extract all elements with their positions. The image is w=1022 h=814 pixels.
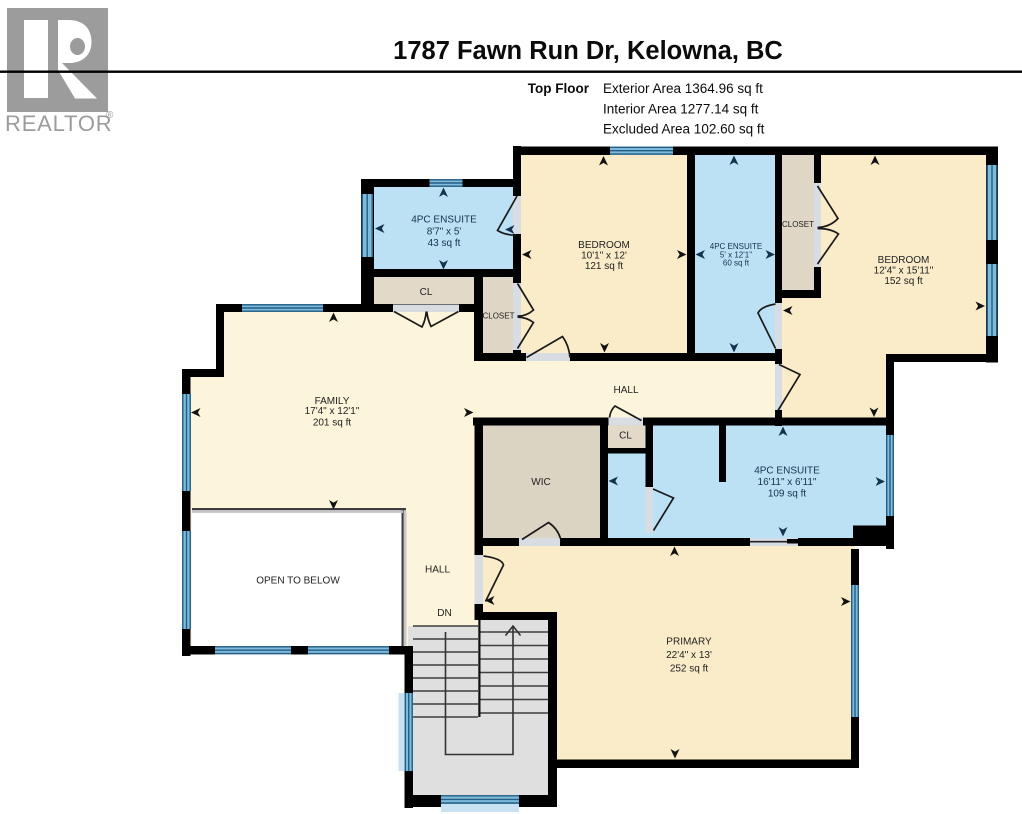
svg-text:Interior Area 1277.14 sq ft: Interior Area 1277.14 sq ft [603, 101, 759, 116]
svg-text:BEDROOM: BEDROOM [578, 240, 630, 251]
svg-text:201 sq ft: 201 sq ft [313, 418, 352, 429]
svg-text:OPEN TO BELOW: OPEN TO BELOW [256, 576, 340, 587]
svg-text:Exterior Area 1364.96 sq ft: Exterior Area 1364.96 sq ft [603, 81, 763, 96]
svg-text:152 sq ft: 152 sq ft [884, 276, 923, 287]
svg-text:CLOSET: CLOSET [482, 312, 514, 321]
svg-text:4PC ENSUITE: 4PC ENSUITE [754, 466, 820, 477]
svg-text:HALL: HALL [613, 385, 638, 396]
svg-text:16'11" x 6'11": 16'11" x 6'11" [758, 477, 817, 488]
svg-text:43 sq ft: 43 sq ft [428, 238, 461, 249]
svg-text:1787 Fawn Run Dr, Kelowna, BC: 1787 Fawn Run Dr, Kelowna, BC [393, 37, 783, 65]
svg-text:WIC: WIC [531, 477, 550, 488]
svg-text:PRIMARY: PRIMARY [666, 637, 712, 648]
svg-text:8'7" x 5': 8'7" x 5' [427, 227, 462, 238]
svg-text:Excluded Area 102.60 sq ft: Excluded Area 102.60 sq ft [603, 122, 765, 137]
svg-text:CLOSET: CLOSET [782, 220, 814, 229]
svg-text:17'4" x 12'1": 17'4" x 12'1" [305, 406, 360, 417]
svg-text:HALL: HALL [425, 565, 450, 576]
svg-text:REALTOR: REALTOR [5, 111, 112, 136]
svg-text:12'4" x 15'11": 12'4" x 15'11" [874, 266, 934, 277]
svg-text:4PC ENSUITE: 4PC ENSUITE [411, 215, 477, 226]
svg-text:CL: CL [420, 287, 433, 298]
svg-text:BEDROOM: BEDROOM [878, 255, 930, 266]
svg-text:DN: DN [437, 608, 451, 619]
svg-text:60 sq ft: 60 sq ft [723, 259, 750, 268]
svg-text:22'4" x 13': 22'4" x 13' [666, 650, 712, 661]
svg-text:121 sq ft: 121 sq ft [585, 261, 624, 272]
svg-text:252 sq ft: 252 sq ft [670, 664, 709, 675]
svg-text:®: ® [106, 110, 114, 121]
svg-text:Top Floor: Top Floor [528, 81, 590, 96]
svg-text:109 sq ft: 109 sq ft [768, 489, 807, 500]
svg-text:CL: CL [619, 431, 632, 442]
svg-text:10'1" x 12': 10'1" x 12' [581, 251, 627, 262]
